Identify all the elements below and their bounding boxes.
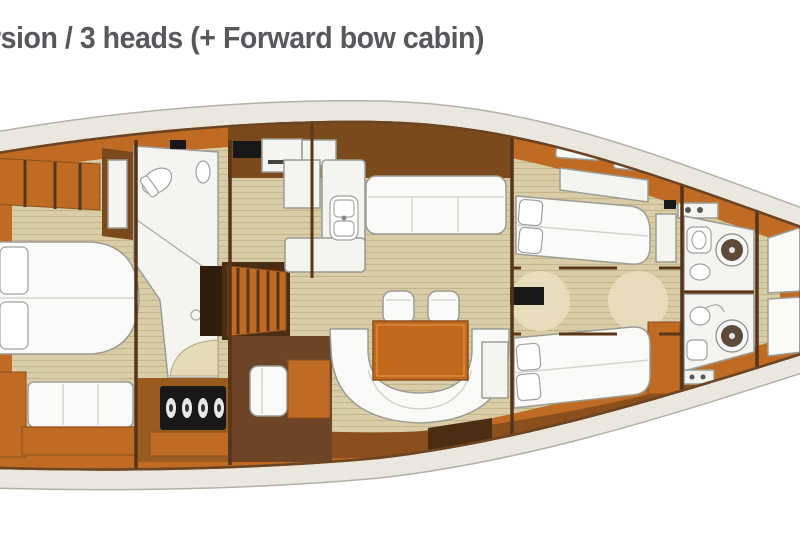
door-slot [664,200,676,209]
stove-icon [233,141,261,158]
aft-wardrobe-door [108,160,127,228]
faucet-icon [342,216,347,221]
floor-plan-figure [0,0,800,533]
salon-table [373,321,468,380]
floor-hatch [510,287,544,305]
bow-cabin [768,227,800,356]
toilet-icon [690,307,710,325]
sink-icon [687,340,707,360]
salon-stool [383,291,414,324]
salon-settee [366,176,506,234]
bow-vberth [768,297,800,356]
nav-desk-edge [150,432,236,456]
nav-seat [250,366,287,416]
aft-bench [28,382,133,427]
stairs-cabinet [200,266,222,336]
bed-pillow [0,302,28,349]
bed-pillow [516,343,541,371]
aft-bench-base [22,427,140,455]
aft-cabin-lockers [0,158,100,210]
bed-pillow [518,227,543,254]
sink-icon [196,161,210,183]
bed-pillow [0,247,28,294]
bed-pillow [518,199,543,226]
aft-cabin [0,148,140,457]
door-slot [170,140,186,149]
galley-fridge [284,160,320,208]
bow-vberth [768,227,800,293]
toilet-icon [690,264,710,280]
salon-stool [428,291,459,324]
salon-cabinet [288,360,330,418]
nav-station [136,378,236,462]
yacht-floor-plan [0,0,800,533]
bed-pillow [516,373,541,401]
cabin-locker [656,214,676,262]
galley-counter-foot [285,238,365,272]
cabin-seat [482,342,508,398]
